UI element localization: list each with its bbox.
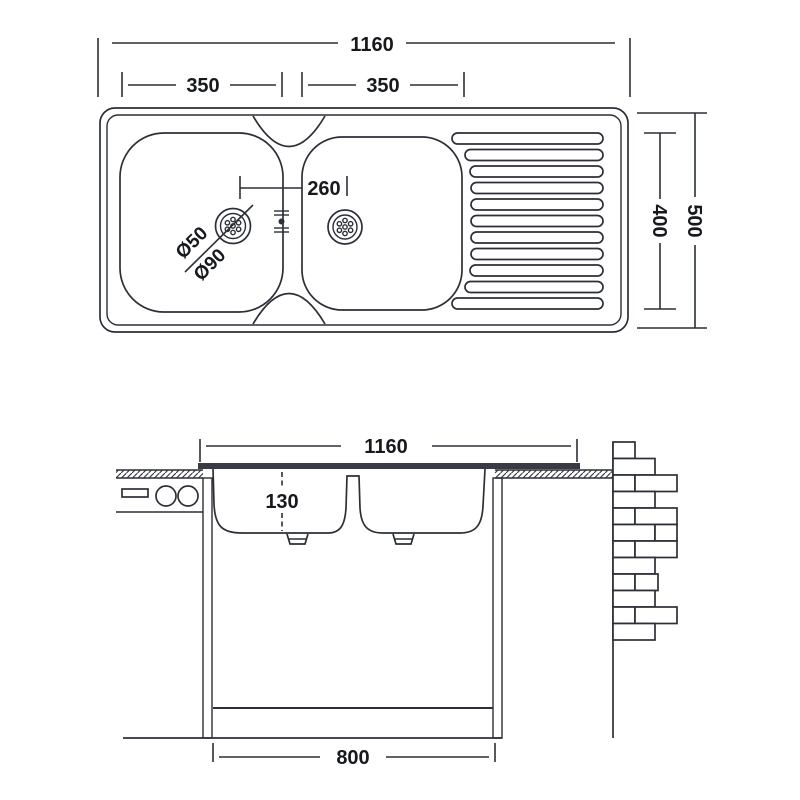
brick [613,558,655,575]
dim-label-left-bowl-width: 350 [186,75,219,97]
waste-diameter-callout: Ø50 Ø90 [172,205,253,285]
top-view: Ø50 Ø90 260 1160 350 [98,34,707,332]
drainer-rib [471,183,603,194]
left-bowl [120,133,283,312]
brick [613,541,635,558]
dim-label-cabinet-width: 800 [336,747,369,769]
dimension-bowl-front-depth: 400 [644,133,676,309]
brick [655,525,677,542]
brick-wall [613,442,677,640]
drainer-rib [470,265,603,276]
dimension-overall-width-section: 1160 [200,436,577,462]
drainer-rib [452,298,603,309]
knob-icon [156,486,176,506]
brick [613,475,635,492]
dimension-right-bowl-width: 350 [302,72,464,97]
countertop-left [116,470,203,478]
dimension-overall-width-top: 1160 [98,34,630,97]
brick [613,607,635,624]
section-view: 1160 [116,436,677,769]
brick [635,475,677,492]
right-waste-outlet-section [393,534,414,544]
countertop-right [495,470,612,478]
brick [613,525,655,542]
drainer-rib [471,199,603,210]
technical-drawing-page: Ø50 Ø90 260 1160 350 [0,0,800,800]
sink-technical-drawing: Ø50 Ø90 260 1160 350 [0,0,800,800]
dim-label-overall-width-section: 1160 [364,436,407,458]
dimension-drain-distance: 260 [240,176,347,200]
right-waste-drain [328,210,362,244]
brick [613,459,655,476]
drainer-rib [465,282,603,293]
overflow-mark [274,211,289,232]
dimension-cabinet-width: 800 [213,743,495,769]
brick [635,607,677,624]
brick [635,508,677,525]
dim-label-overall-width-top: 1160 [350,34,393,56]
dimension-overall-depth: 500 [637,113,707,328]
dim-label-drain-distance: 260 [307,178,340,200]
drainer-rib [452,133,603,144]
center-divider-top-curve [253,116,325,147]
left-waste-outlet-section [287,534,308,544]
drainer-rib [471,216,603,227]
brick [613,442,635,459]
dim-label-overall-depth: 500 [683,204,705,237]
sink-rim-section [198,463,580,469]
drainer-ribs [452,133,603,309]
brick [613,508,635,525]
cabinet-right-panel [493,478,502,738]
dim-label-bowl-depth: 130 [265,491,298,513]
cabinet-front-detail [116,486,203,512]
dimension-bowl-depth: 130 [265,472,298,531]
drainer-rib [471,249,603,260]
brick [635,574,658,591]
dim-label-bowl-front-depth: 400 [648,204,670,237]
drainer-rib [471,232,603,243]
brick [613,624,655,641]
right-bowl [302,137,462,310]
brick [613,591,655,608]
knob-icon [178,486,198,506]
dimension-left-bowl-width: 350 [122,72,282,97]
brick [613,492,655,509]
cabinet-left-panel [203,478,212,738]
brick [635,541,677,558]
handle-icon [122,489,148,497]
brick [613,574,635,591]
bowls-cross-section [213,469,485,533]
drainer-rib [470,166,603,177]
drainer-rib [465,150,603,161]
dim-label-right-bowl-width: 350 [366,75,399,97]
